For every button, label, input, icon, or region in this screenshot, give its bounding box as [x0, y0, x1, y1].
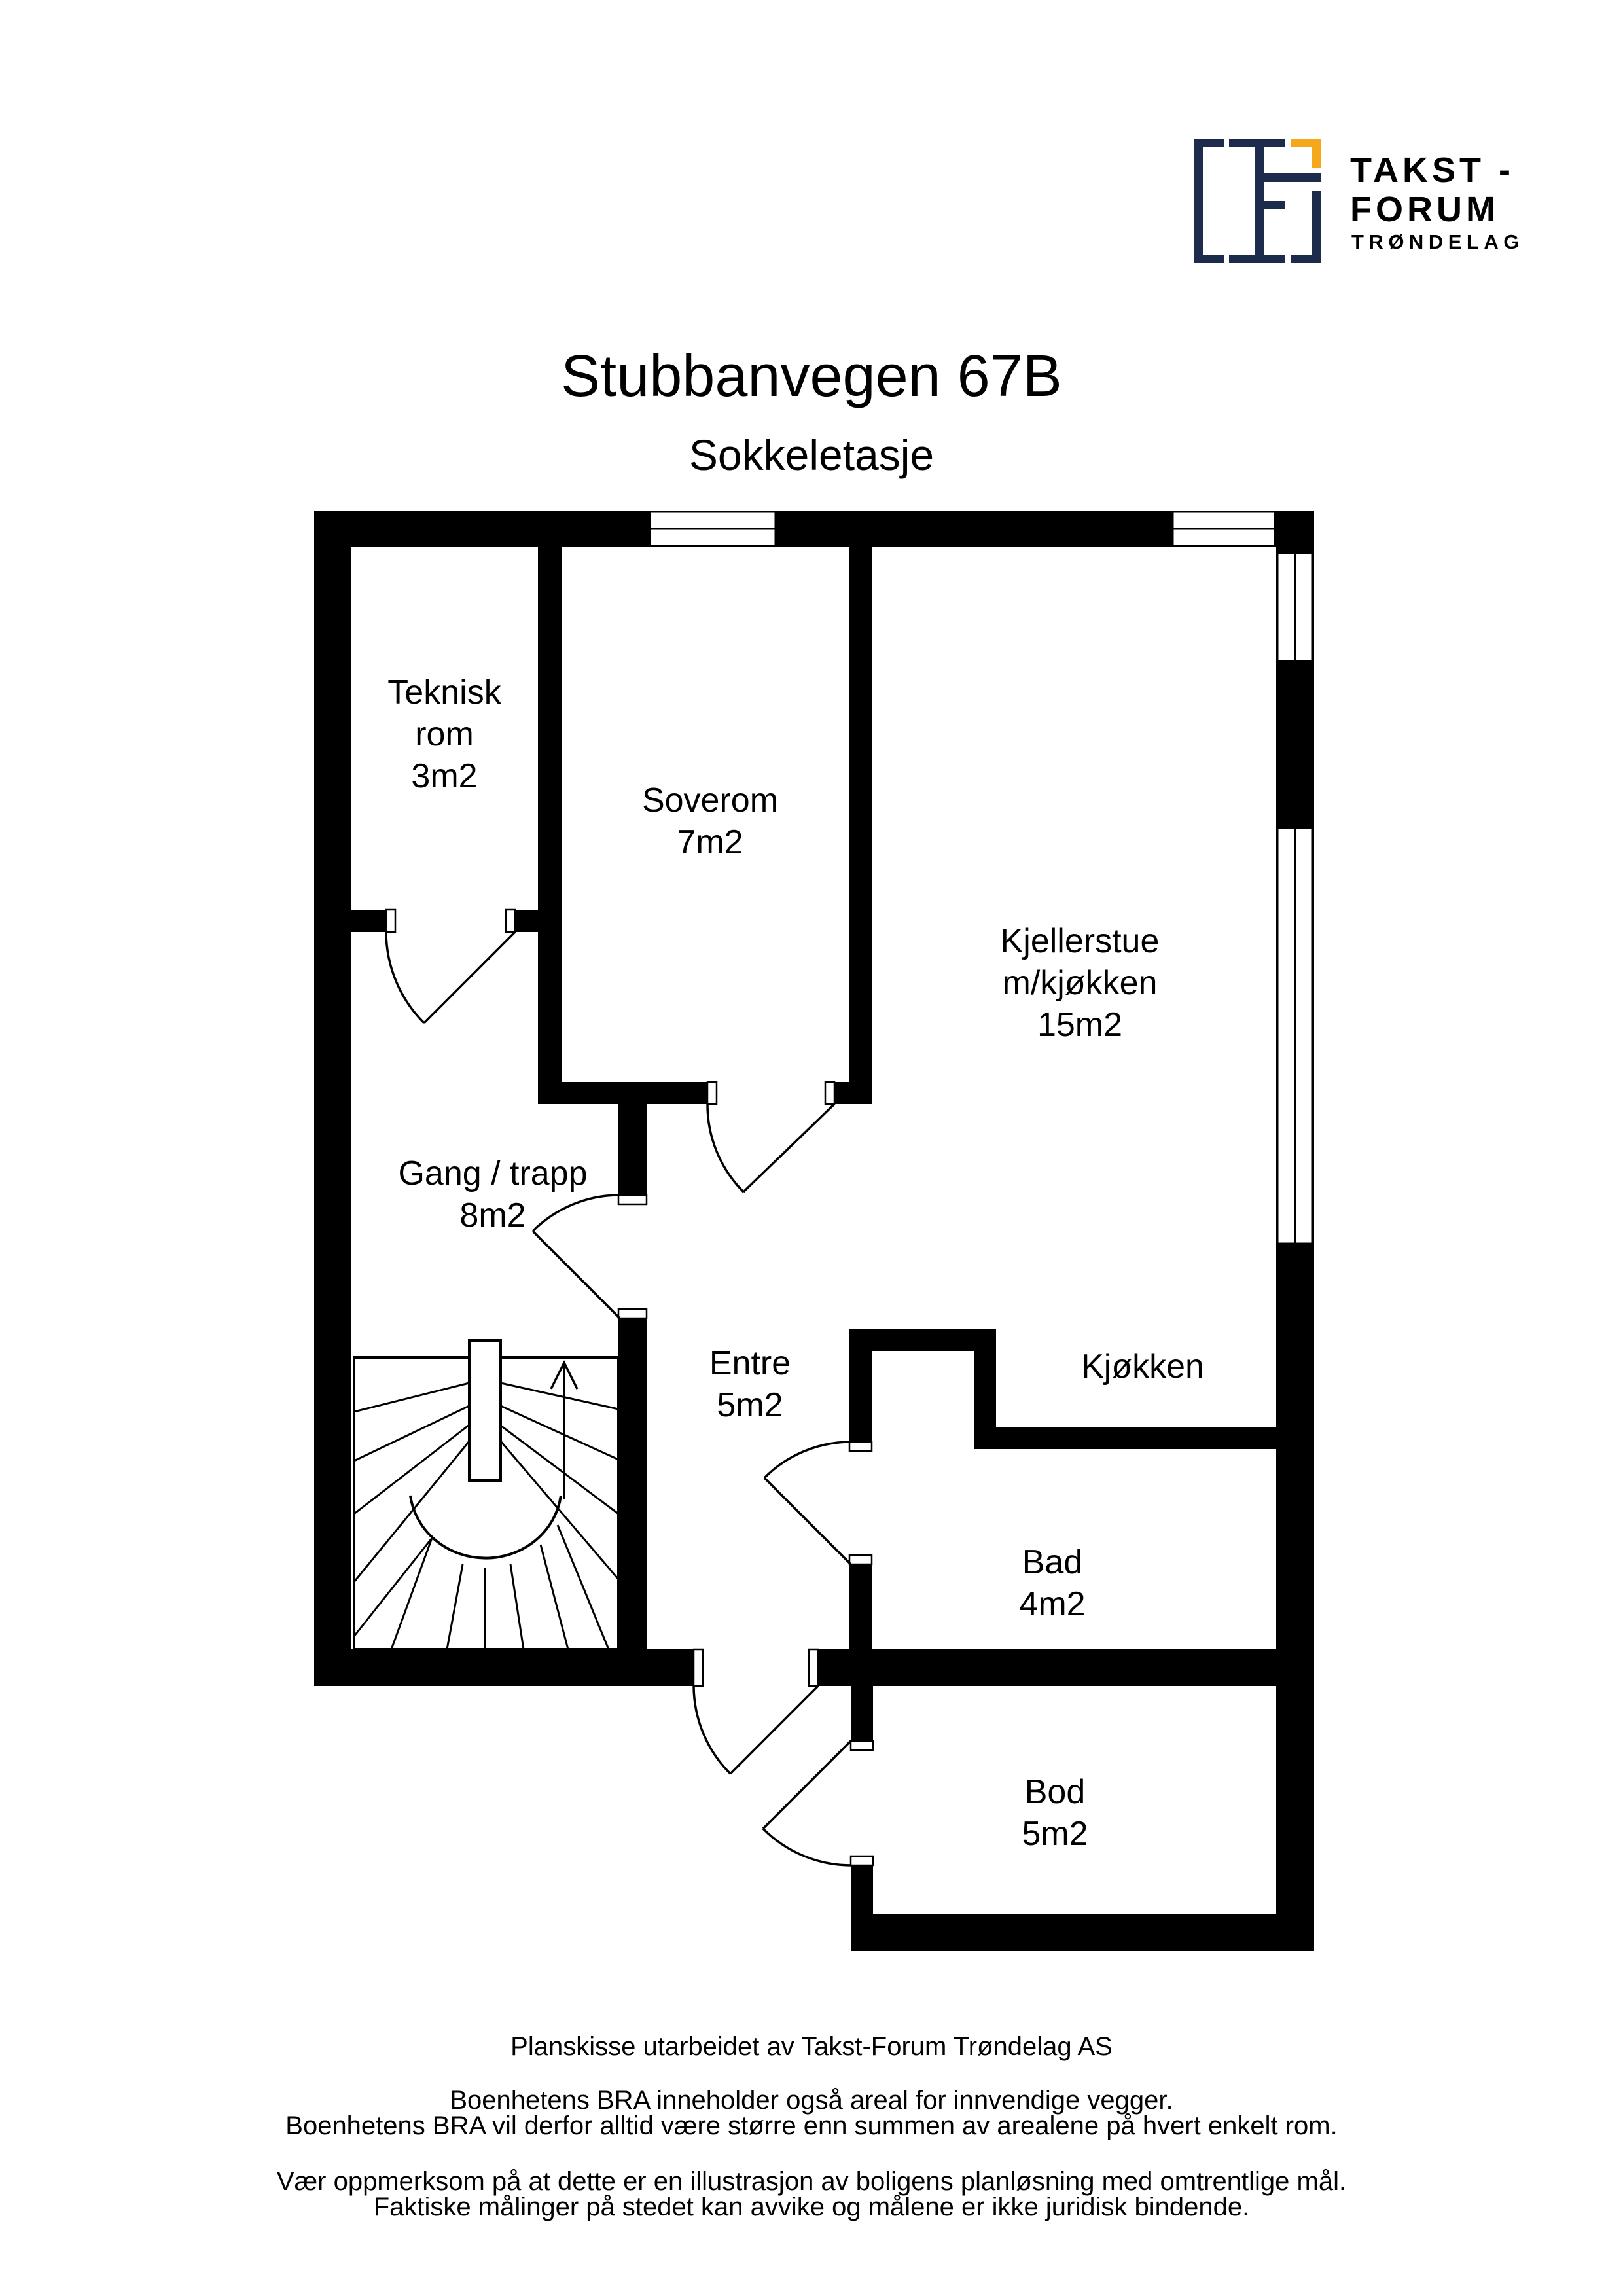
footer-line: Boenhetens BRA inneholder også areal for…: [450, 2086, 1173, 2115]
window: [1173, 512, 1275, 546]
logo-text-forum: FORUM: [1350, 190, 1499, 229]
door-swing: [533, 1195, 647, 1318]
svg-text:Teknisk: Teknisk: [387, 673, 501, 711]
door-swing: [764, 1442, 872, 1564]
windows: [650, 512, 1313, 1244]
door-swing: [386, 910, 515, 1023]
svg-text:Gang / trapp: Gang / trapp: [398, 1155, 587, 1193]
room-label-entre: Entre 5m2: [709, 1344, 791, 1424]
window: [650, 512, 776, 546]
page-title: Stubbanvegen 67B: [561, 344, 1062, 409]
door-swing: [763, 1741, 873, 1865]
logo-text-takst: TAKST -: [1350, 151, 1514, 190]
room-label-kjellerstue: Kjellerstue m/kjøkken 15m2: [1001, 922, 1160, 1044]
footer-line: Faktiske målinger på stedet kan avvike o…: [374, 2193, 1249, 2221]
footer-line: Boenhetens BRA vil derfor alltid være st…: [285, 2111, 1337, 2140]
page-subtitle: Sokkeletasje: [689, 431, 934, 479]
room-label-kjokken: Kjøkken: [1081, 1348, 1204, 1386]
takst-forum-logo-icon: [1194, 139, 1321, 263]
room-label-bod: Bod 5m2: [1022, 1773, 1088, 1853]
svg-text:5m2: 5m2: [1022, 1815, 1088, 1853]
door-swing: [707, 1082, 834, 1192]
footer-line: Planskisse utarbeidet av Takst-Forum Trø…: [510, 2032, 1113, 2061]
svg-text:m/kjøkken: m/kjøkken: [1003, 964, 1158, 1002]
takst-forum-logo: TAKST - FORUM TRØNDELAG: [1194, 139, 1524, 263]
room-label-bad: Bad 4m2: [1019, 1543, 1085, 1623]
svg-text:15m2: 15m2: [1037, 1006, 1122, 1044]
logo-orange-corner: [1291, 139, 1321, 168]
svg-text:5m2: 5m2: [717, 1386, 783, 1424]
room-label-gang: Gang / trapp 8m2: [398, 1155, 587, 1234]
footer-line: Vær oppmerksom på at dette er en illustr…: [277, 2167, 1346, 2196]
footer: Planskisse utarbeidet av Takst-Forum Trø…: [277, 2032, 1346, 2221]
svg-text:Kjellerstue: Kjellerstue: [1001, 922, 1160, 960]
svg-text:Kjøkken: Kjøkken: [1081, 1348, 1204, 1386]
stair-newel-slot: [469, 1340, 501, 1480]
window: [1277, 828, 1313, 1244]
svg-text:Entre: Entre: [709, 1344, 791, 1382]
stair-walkline-curve: [410, 1496, 561, 1558]
svg-text:Bad: Bad: [1022, 1543, 1083, 1581]
planskisse-page: TAKST - FORUM TRØNDELAG Stubbanvegen 67B…: [0, 0, 1623, 2296]
logo-text-trondelag: TRØNDELAG: [1351, 230, 1524, 253]
svg-text:rom: rom: [415, 715, 474, 753]
svg-text:8m2: 8m2: [459, 1196, 526, 1234]
floorplan-svg: TAKST - FORUM TRØNDELAG Stubbanvegen 67B…: [0, 0, 1623, 2296]
window: [1277, 553, 1313, 661]
room-label-soverom: Soverom 7m2: [642, 781, 778, 861]
door-swing: [694, 1649, 818, 1774]
room-label-teknisk: Teknisk rom 3m2: [387, 673, 501, 795]
svg-text:3m2: 3m2: [411, 757, 477, 795]
svg-text:7m2: 7m2: [677, 823, 743, 861]
svg-text:Soverom: Soverom: [642, 781, 778, 819]
svg-text:Bod: Bod: [1025, 1773, 1086, 1811]
staircase: [354, 1340, 618, 1649]
svg-text:4m2: 4m2: [1019, 1585, 1085, 1623]
